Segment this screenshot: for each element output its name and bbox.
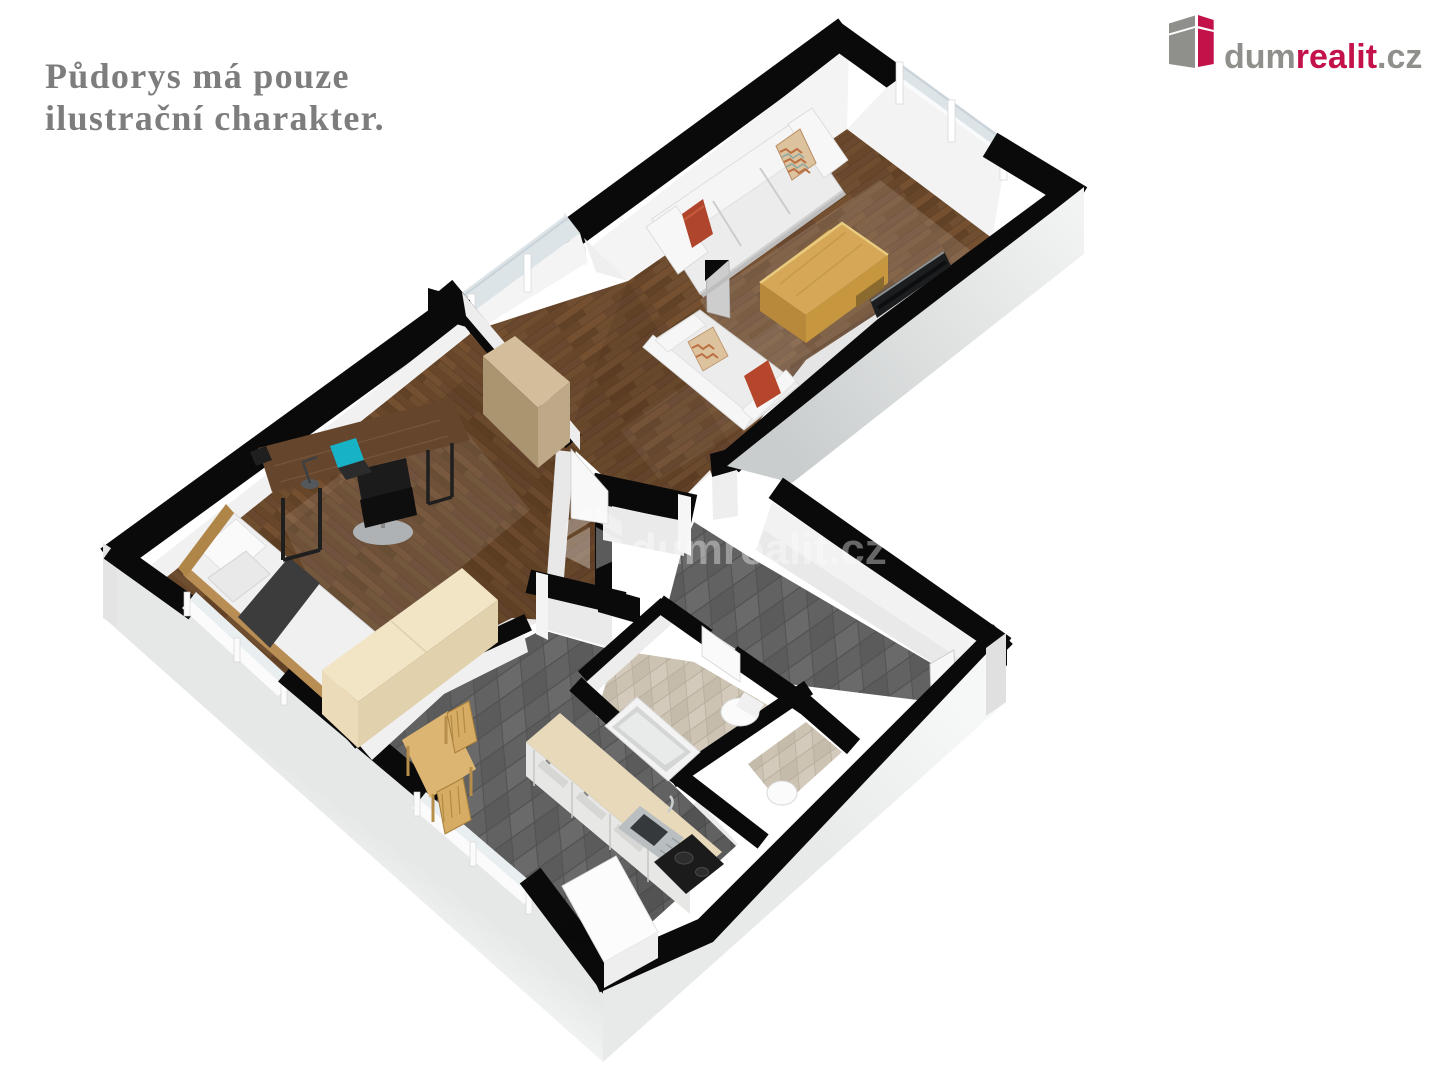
svg-text:ilustrační charakter.: ilustrační charakter.: [45, 98, 385, 138]
svg-text:dumrealit.cz: dumrealit.cz: [1224, 38, 1422, 76]
svg-text:dumrealit.cz: dumrealit.cz: [630, 525, 887, 574]
svg-text:Půdorys má pouze: Půdorys má pouze: [45, 56, 350, 96]
